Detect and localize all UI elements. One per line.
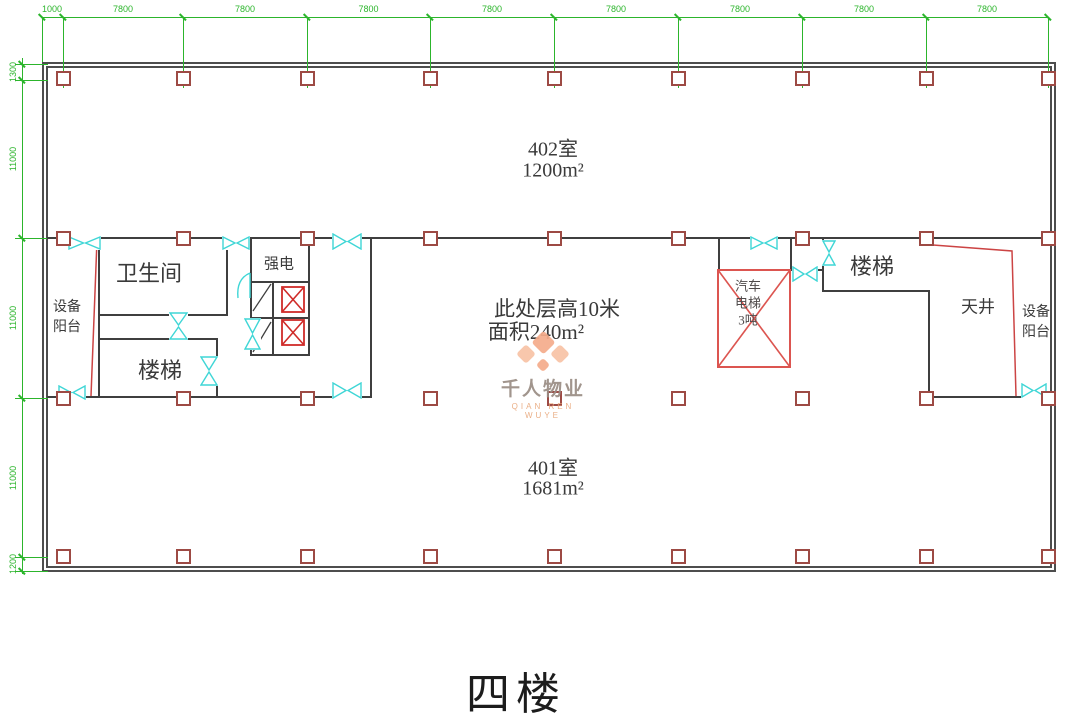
column-r1-c2: [176, 71, 191, 86]
watermark: 千人物业 QIAN REN WUYE: [493, 334, 593, 420]
left-dim-ext-6: [15, 571, 48, 572]
wall-strong-power-divider: [272, 281, 274, 356]
top-dim-offset-label: 1000: [42, 4, 62, 14]
equip-balcony-right-line1: 设备: [1022, 303, 1050, 323]
column-r1-c1: [56, 71, 71, 86]
wall-balcony-left-inner: [98, 238, 100, 398]
column-r2-c7: [795, 231, 810, 246]
top-dim-bay-label-2: 7800: [235, 4, 255, 14]
column-r2-c9: [1041, 231, 1056, 246]
watermark-sub: QIAN REN WUYE: [493, 402, 593, 420]
car-elevator-line1: 汽车: [735, 278, 761, 295]
wall-stairs-left-top: [99, 338, 218, 340]
door-left-balcony-top: [68, 236, 101, 250]
column-r2-c4: [423, 231, 438, 246]
left-dim-ext-3: [15, 238, 48, 239]
column-r2-c2: [176, 231, 191, 246]
wall-left-block-right: [370, 238, 372, 398]
column-r2-c8: [919, 231, 934, 246]
top-dim-bay-label-3: 7800: [358, 4, 378, 14]
column-r4-c8: [919, 549, 934, 564]
left-dim-label-2: 11000: [8, 147, 18, 171]
equip-balcony-left-line1: 设备: [53, 298, 81, 318]
left-dim-ext-1: [15, 64, 48, 65]
car-elevator-line2: 电梯: [735, 295, 761, 312]
top-dim-bay-label-1: 7800: [113, 4, 133, 14]
column-r2-c5: [547, 231, 562, 246]
column-r3-c3: [300, 391, 315, 406]
room-401-label: 401室: [528, 452, 578, 481]
wall-mid-bottom-left: [47, 396, 372, 398]
car-elevator-label: 汽车 电梯 3吨: [735, 278, 761, 329]
left-dim-ext-2: [15, 80, 48, 81]
door-elevator-side: [792, 266, 818, 282]
door-center-bottom: [332, 382, 362, 399]
column-r2-c6: [671, 231, 686, 246]
column-r4-c5: [547, 549, 562, 564]
top-dim-bay-label-4: 7800: [482, 4, 502, 14]
column-r1-c7: [795, 71, 810, 86]
room-402-label: 402室: [528, 133, 578, 162]
column-r4-c9: [1041, 549, 1056, 564]
column-r4-c1: [56, 549, 71, 564]
column-r1-c9: [1041, 71, 1056, 86]
column-r3-c8: [919, 391, 934, 406]
top-dim-bay-label-8: 7800: [977, 4, 997, 14]
column-r4-c3: [300, 549, 315, 564]
floor-plan-canvas: 100078007800780078007800780078007800 130…: [0, 0, 1080, 720]
column-r2-c3: [300, 231, 315, 246]
column-r4-c6: [671, 549, 686, 564]
wall-toilet-bottom: [99, 314, 228, 316]
column-r3-c9: [1041, 391, 1056, 406]
strong-power-label: 强电: [264, 253, 294, 274]
wall-strong-power-mid1: [250, 281, 310, 283]
wall-strong-power-right: [308, 238, 310, 356]
left-dim-label-5: 1200: [8, 554, 18, 574]
door-center-top: [332, 233, 362, 250]
column-r1-c5: [547, 71, 562, 86]
top-dim-baseline: [42, 17, 1049, 18]
door-toilet: [169, 312, 188, 340]
stairs-right-label: 楼梯: [850, 249, 894, 281]
top-dim-bay-label-7: 7800: [854, 4, 874, 14]
door-strong-power: [244, 318, 261, 350]
top-dim-bay-label-5: 7800: [606, 4, 626, 14]
room-402-area: 1200m²: [522, 160, 584, 183]
equip-balcony-left-line2: 阳台: [53, 318, 81, 338]
door-stairs-left: [200, 356, 218, 386]
column-r4-c7: [795, 549, 810, 564]
wall-stairs-right-bottom: [822, 290, 930, 292]
column-r2-c1: [56, 231, 71, 246]
column-r3-c1: [56, 391, 71, 406]
wall-courtyard-left: [928, 290, 930, 398]
equip-balcony-left-label: 设备 阳台: [53, 298, 81, 338]
wall-strong-power-bottom: [250, 354, 310, 356]
column-r1-c4: [423, 71, 438, 86]
flower-icon: [513, 334, 573, 374]
column-r3-c7: [795, 391, 810, 406]
wall-elevator-left-stub: [718, 238, 720, 271]
column-r3-c4: [423, 391, 438, 406]
column-r3-c2: [176, 391, 191, 406]
door-stairs-right: [822, 240, 836, 266]
courtyard-label: 天井: [961, 293, 995, 318]
stairs-left-label: 楼梯: [138, 353, 182, 385]
floor-title: 四楼: [466, 658, 566, 720]
column-r4-c2: [176, 549, 191, 564]
door-top-1: [222, 236, 250, 250]
left-dim-ext-4: [15, 398, 48, 399]
toilet-label: 卫生间: [116, 256, 182, 288]
top-dim-bay-label-6: 7800: [730, 4, 750, 14]
equip-balcony-right-line2: 阳台: [1022, 323, 1050, 343]
left-dim-baseline: [22, 58, 23, 574]
watermark-name: 千人物业: [493, 374, 593, 401]
door-elevator-lobby-top: [750, 236, 778, 250]
left-dim-label-4: 11000: [8, 465, 18, 489]
equip-balcony-right-label: 设备 阳台: [1022, 303, 1050, 343]
column-r3-c6: [671, 391, 686, 406]
left-dim-ext-5: [15, 557, 48, 558]
room-401-area: 1681m²: [522, 478, 584, 501]
left-dim-label-3: 11000: [8, 306, 18, 330]
car-elevator-line3: 3吨: [735, 312, 761, 329]
column-r1-c3: [300, 71, 315, 86]
column-r4-c4: [423, 549, 438, 564]
left-dim-label-1: 1300: [8, 62, 18, 82]
top-dim-ext-edge: [42, 17, 43, 62]
column-r1-c8: [919, 71, 934, 86]
column-r1-c6: [671, 71, 686, 86]
